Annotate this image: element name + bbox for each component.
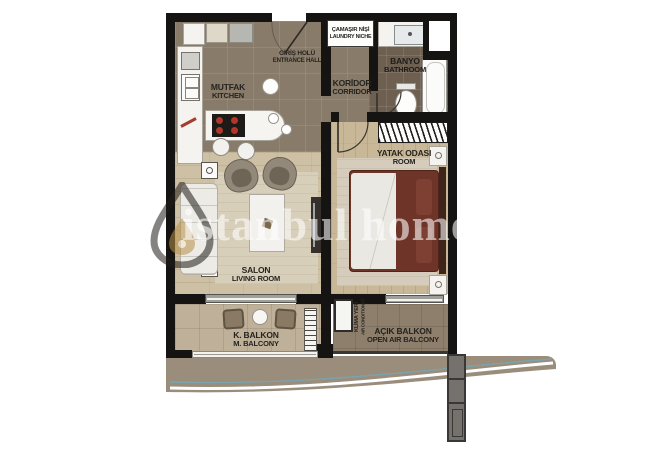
label-bathroom-en: BATHROOM	[372, 66, 438, 75]
label-corridor-en: CORRIDOR	[316, 88, 388, 97]
label-living-en: LIVING ROOM	[214, 275, 298, 284]
laundry-niche-box: ÇAMAŞIR NİŞİ LAUNDRY NICHE	[327, 20, 374, 47]
corner-niche	[429, 21, 450, 51]
floor-plan: ÇAMAŞIR NİŞİ LAUNDRY NICHE MUTFAK KITCHE…	[0, 0, 650, 450]
label-ac-unit: KLİMA YERİ AIR CONDITIONER	[354, 297, 366, 337]
label-laundry-niche: ÇAMAŞIR NİŞİ LAUNDRY NICHE	[330, 27, 372, 40]
label-balcony: K. BALKON M. BALCONY	[214, 330, 298, 349]
label-living-room: SALON LIVING ROOM	[214, 265, 298, 284]
bedroom-balcony-window	[385, 295, 444, 303]
column-divider	[449, 402, 464, 404]
label-open-balcony-en: OPEN AIR BALCONY	[356, 336, 450, 345]
label-entrance-tr: GİRİŞ HOLÜ	[257, 50, 337, 58]
label-open-balcony: AÇIK BALKON OPEN AIR BALCONY	[356, 326, 450, 345]
label-kitchen-en: KITCHEN	[192, 92, 264, 101]
label-bathroom: BANYO BATHROOM	[372, 56, 438, 75]
ac-unit-box	[334, 299, 353, 332]
wall-balcony-corner	[316, 344, 333, 358]
label-corridor: KORİDOR CORRIDOR	[316, 78, 388, 97]
wall-living-bottom-left	[166, 294, 206, 304]
living-balcony-slider	[205, 294, 297, 303]
wall-balcony-bottom-stub	[166, 350, 192, 358]
column-divider	[449, 378, 464, 380]
label-entrance-en: ENTRANCE HALL	[257, 58, 337, 65]
wall-bedroom-top	[367, 112, 448, 122]
label-entrance-hall: GİRİŞ HOLÜ ENTRANCE HALL	[257, 50, 337, 65]
balcony-railing	[192, 351, 318, 358]
label-balcony-en: M. BALCONY	[214, 340, 298, 349]
railing-line	[194, 354, 316, 355]
watermark-text: istanbul home	[182, 198, 472, 251]
label-bedroom: YATAK ODASI ROOM	[360, 148, 448, 167]
label-ac-tr: KLİMA YERİ	[354, 297, 361, 337]
column-panel	[452, 409, 463, 437]
wall-top-left	[166, 13, 272, 22]
label-ac-en: AIR CONDITIONER	[361, 297, 366, 337]
wall-balcony-divider	[321, 300, 331, 348]
structural-column	[447, 354, 466, 442]
label-bedroom-en: ROOM	[360, 158, 448, 167]
open-balcony-edge	[333, 351, 448, 354]
label-laundry-en: LAUNDRY NICHE	[330, 34, 372, 40]
balcony-window-mullion	[304, 308, 317, 352]
wall-living-bottom-right	[296, 294, 331, 304]
wall-bedroom-top-stub	[331, 112, 339, 122]
label-laundry-tr: ÇAMAŞIR NİŞİ	[330, 27, 372, 34]
label-kitchen: MUTFAK KITCHEN	[192, 82, 264, 101]
